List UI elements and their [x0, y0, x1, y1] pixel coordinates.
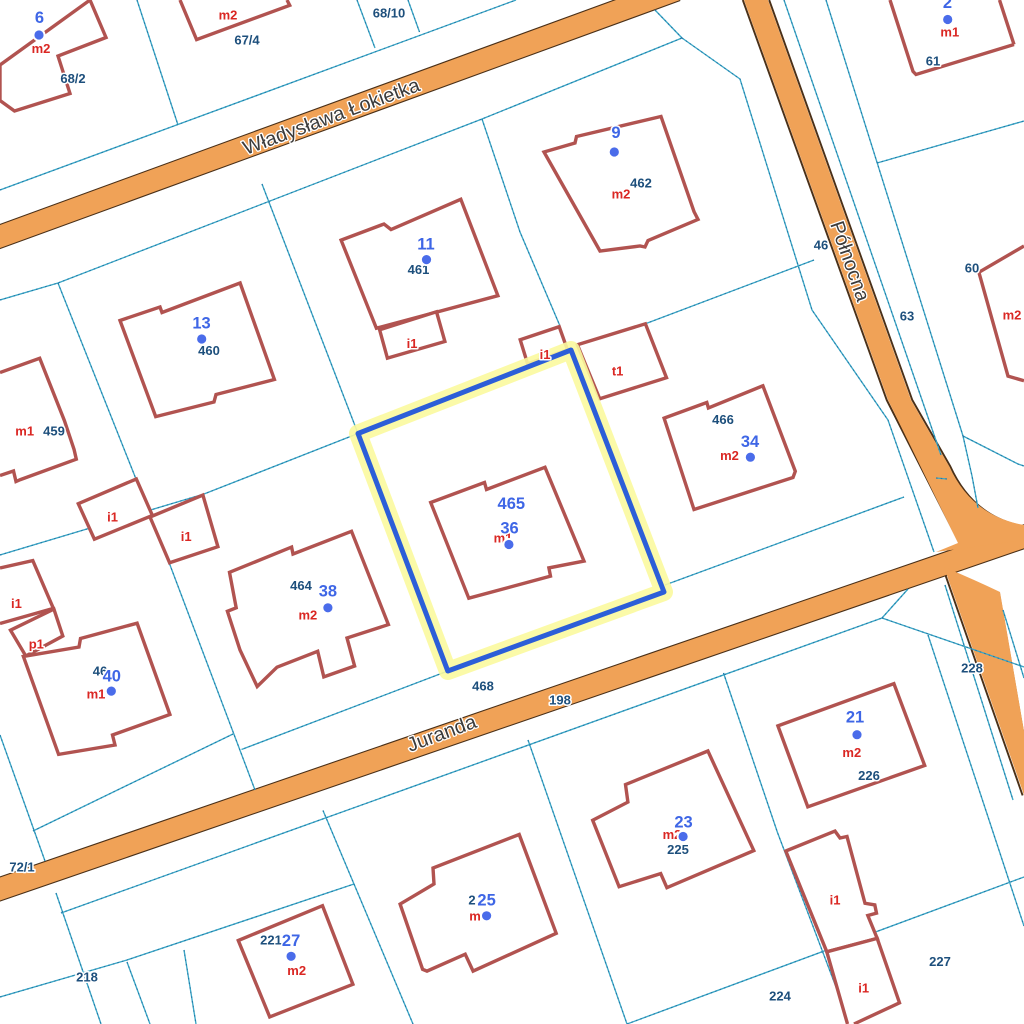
- svg-text:21: 21: [846, 709, 864, 727]
- svg-text:m2: m2: [299, 608, 318, 623]
- svg-text:227: 227: [929, 954, 951, 969]
- svg-text:t1: t1: [612, 363, 624, 378]
- svg-text:224: 224: [769, 989, 791, 1004]
- svg-text:11: 11: [417, 235, 434, 253]
- svg-text:i1: i1: [830, 893, 841, 908]
- svg-text:218: 218: [76, 970, 98, 985]
- svg-text:6: 6: [35, 9, 44, 27]
- svg-text:25: 25: [477, 892, 495, 910]
- svg-text:i1: i1: [407, 336, 418, 351]
- svg-text:m2: m2: [32, 41, 51, 56]
- svg-text:i1: i1: [181, 529, 192, 544]
- svg-text:63: 63: [900, 309, 914, 324]
- svg-text:23: 23: [674, 813, 692, 831]
- svg-text:i1: i1: [107, 509, 118, 524]
- svg-text:459: 459: [43, 424, 65, 439]
- svg-text:m: m: [469, 909, 481, 924]
- svg-text:68/10: 68/10: [373, 6, 406, 21]
- svg-text:40: 40: [103, 667, 121, 685]
- svg-text:m1: m1: [15, 424, 34, 439]
- svg-text:m2: m2: [287, 963, 306, 978]
- svg-text:462: 462: [630, 176, 652, 191]
- svg-text:221: 221: [260, 933, 282, 948]
- svg-text:m2: m2: [1003, 308, 1022, 323]
- svg-text:9: 9: [611, 124, 620, 142]
- svg-text:27: 27: [282, 932, 300, 950]
- svg-text:m1: m1: [87, 687, 106, 702]
- svg-text:2: 2: [943, 0, 952, 12]
- svg-text:468: 468: [472, 679, 494, 694]
- svg-text:13: 13: [192, 315, 210, 333]
- svg-text:m2: m2: [612, 187, 631, 202]
- svg-text:464: 464: [290, 578, 312, 593]
- svg-text:466: 466: [712, 412, 734, 427]
- svg-text:465: 465: [498, 495, 526, 513]
- svg-text:m2: m2: [720, 448, 739, 463]
- svg-text:198: 198: [549, 693, 571, 708]
- svg-text:38: 38: [319, 583, 337, 601]
- svg-text:m2: m2: [219, 8, 238, 23]
- svg-text:p1: p1: [29, 636, 44, 651]
- svg-text:46: 46: [814, 238, 828, 253]
- svg-text:72/1: 72/1: [9, 860, 34, 875]
- svg-text:67/4: 67/4: [234, 33, 260, 48]
- svg-text:68/2: 68/2: [60, 71, 85, 86]
- svg-text:225: 225: [667, 842, 689, 857]
- svg-text:61: 61: [926, 54, 940, 69]
- svg-text:m1: m1: [940, 25, 959, 40]
- svg-text:60: 60: [965, 261, 979, 276]
- svg-text:36: 36: [500, 520, 518, 538]
- svg-text:34: 34: [741, 433, 760, 451]
- svg-text:i1: i1: [11, 596, 22, 611]
- svg-text:2: 2: [468, 893, 475, 908]
- svg-text:m2: m2: [842, 745, 861, 760]
- svg-text:228: 228: [961, 661, 983, 676]
- svg-text:226: 226: [858, 768, 880, 783]
- svg-text:i1: i1: [540, 347, 551, 362]
- svg-text:i1: i1: [858, 980, 869, 995]
